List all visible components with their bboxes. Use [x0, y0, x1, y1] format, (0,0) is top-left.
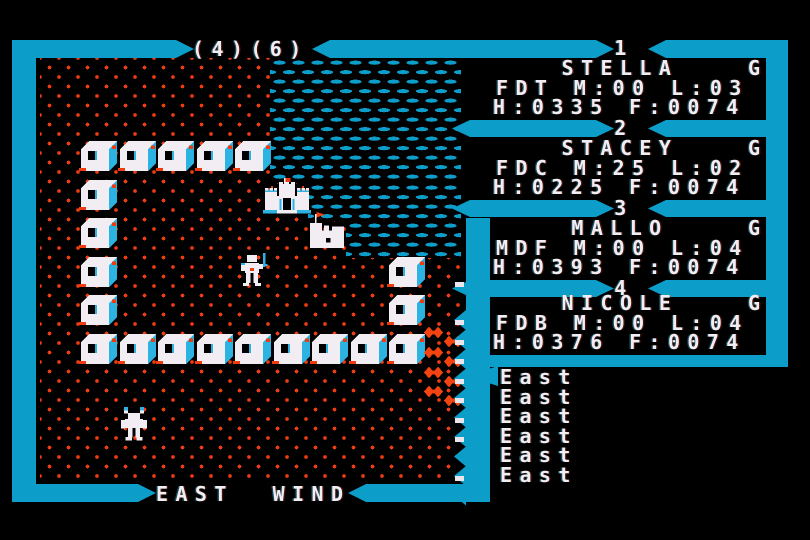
panel-bar-2 — [470, 120, 596, 137]
border-tick-mark — [455, 340, 464, 345]
border-tick-mark — [455, 418, 464, 423]
character-status: G — [748, 139, 767, 158]
border-tick-mark — [455, 379, 464, 384]
lava-tile — [424, 366, 444, 379]
border-tick-mark — [455, 282, 464, 287]
border-tick-mark — [455, 476, 464, 481]
arrow-left-icon — [312, 40, 330, 58]
dungeon-tile — [156, 141, 194, 173]
character-status: G — [748, 59, 767, 78]
dungeon-tile — [118, 334, 156, 366]
castle-tile — [263, 178, 311, 216]
arrow-left-icon — [648, 120, 666, 137]
arrow-right-icon — [138, 484, 156, 502]
wind-bar-left — [12, 484, 138, 502]
border-tick-mark — [455, 320, 464, 325]
dungeon-tile — [79, 141, 117, 173]
border-left — [12, 40, 36, 502]
border-tick-mark — [455, 398, 464, 403]
wind-bar-right — [366, 484, 466, 502]
dungeon-tile — [349, 334, 387, 366]
border-tick-mark — [455, 359, 464, 364]
dungeon-tile — [156, 334, 194, 366]
dungeon-tile — [233, 334, 271, 366]
border-tick-mark — [455, 437, 464, 442]
dungeon-tile — [387, 257, 425, 289]
dungeon-tile — [79, 218, 117, 250]
border-map-log-divider — [466, 218, 490, 502]
town-tile — [306, 212, 348, 250]
lava-tile — [424, 326, 444, 339]
dungeon-tile — [387, 295, 425, 327]
dungeon-tile — [79, 257, 117, 289]
dungeon-tile — [195, 334, 233, 366]
lava-tile — [424, 346, 444, 359]
creature-sprite — [118, 407, 150, 443]
player-fighter-sprite — [235, 251, 269, 289]
arrow-left-icon — [348, 484, 366, 502]
panel-bar-3b — [666, 200, 788, 217]
dungeon-tile — [79, 295, 117, 327]
dungeon-tile — [195, 141, 233, 173]
arrow-left-icon — [648, 200, 666, 217]
map-coordinates: (4)(6) — [192, 40, 309, 59]
dungeon-tile — [118, 141, 156, 173]
water-tiles — [270, 58, 461, 183]
panel-bar-3 — [470, 200, 596, 217]
dungeon-tile — [272, 334, 310, 366]
wind-direction-label: EAST WIND — [156, 485, 350, 504]
border-top-mid-bar — [330, 40, 596, 58]
dungeon-tile — [79, 334, 117, 366]
dungeon-tile — [310, 334, 348, 366]
border-top-left-bar — [12, 40, 176, 58]
character-status: G — [748, 294, 767, 313]
panel-bar-2b — [666, 120, 788, 137]
character-vitals: H:0335 F:0074 — [493, 98, 746, 117]
dungeon-tile — [79, 180, 117, 212]
dungeon-tile — [387, 334, 425, 366]
character-status: G — [748, 219, 767, 238]
character-vitals: H:0225 F:0074 — [493, 178, 746, 197]
character-vitals: H:0376 F:0074 — [493, 333, 746, 352]
lava-tile — [424, 385, 444, 398]
character-vitals: H:0393 F:0074 — [493, 258, 746, 277]
game-screen[interactable]: (4)(6) EAST WIND 1 2 3 4 STELLA G FDT M:… — [0, 0, 810, 540]
water-tiles — [346, 221, 461, 258]
dungeon-tile — [233, 141, 271, 173]
log-entry: East — [500, 466, 578, 485]
